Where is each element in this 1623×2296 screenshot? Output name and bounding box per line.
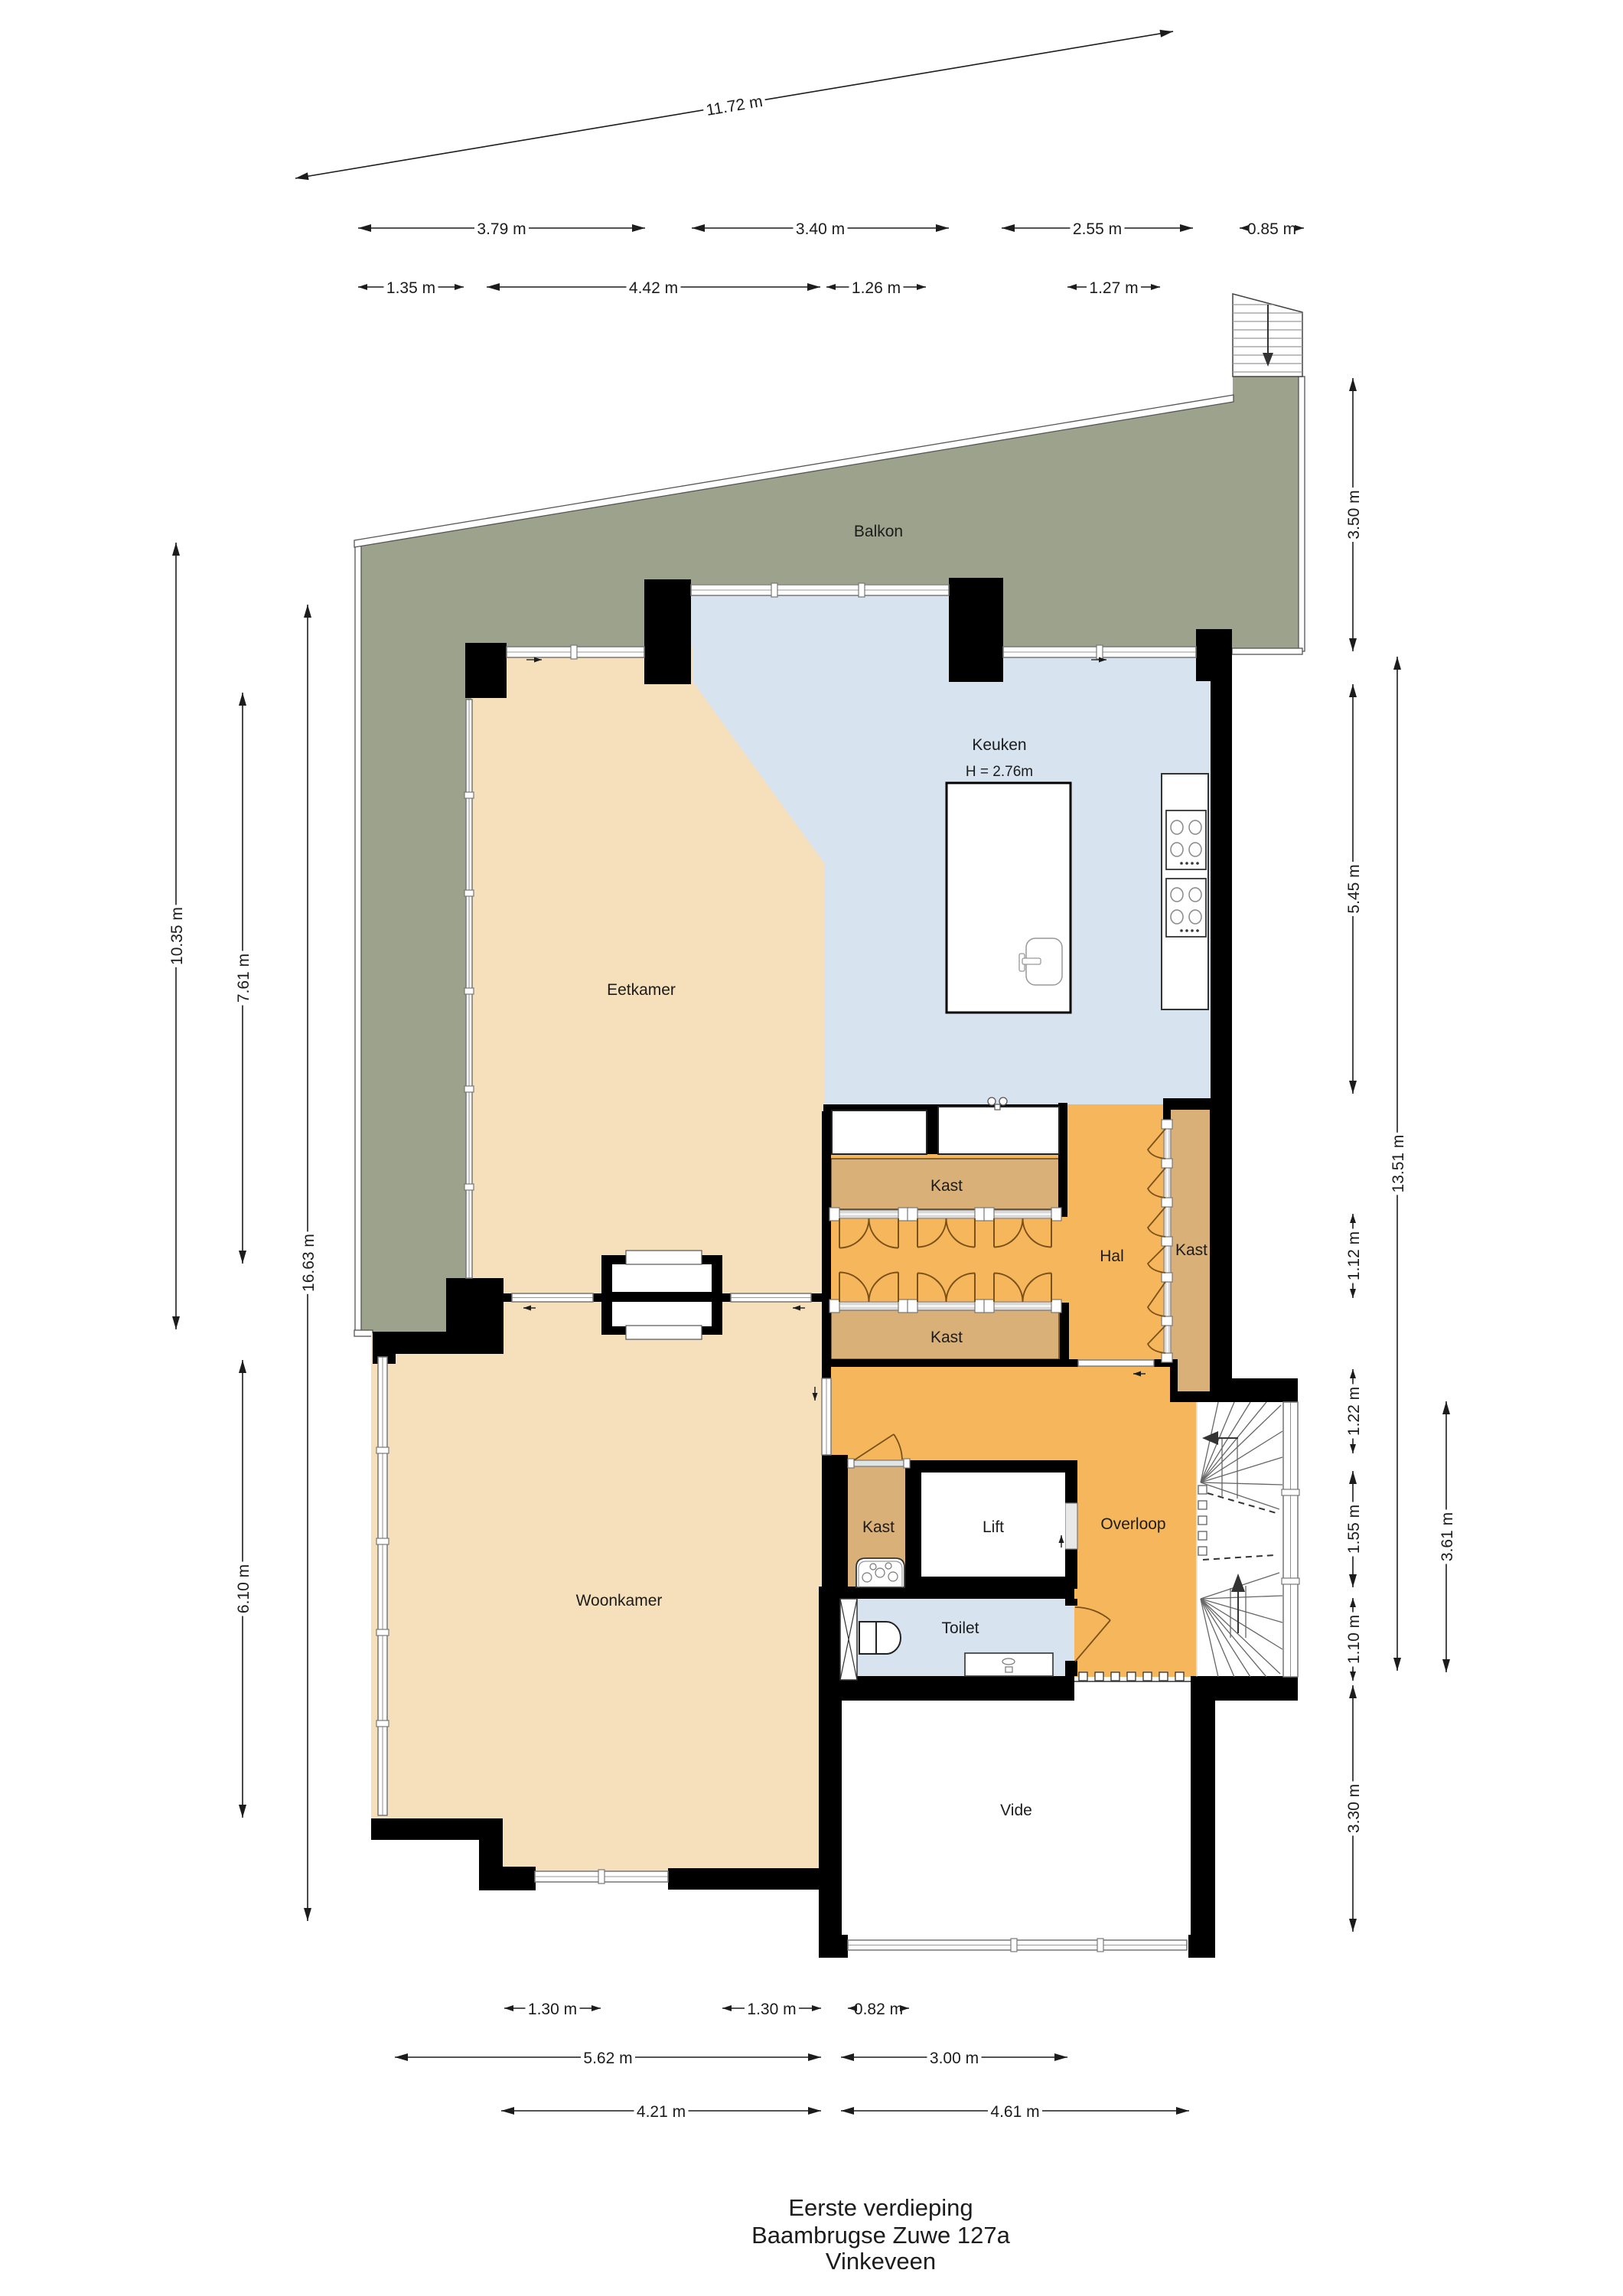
svg-text:Keuken: Keuken: [972, 736, 1026, 754]
svg-text:6.10 m: 6.10 m: [235, 1564, 253, 1613]
svg-text:Kast: Kast: [930, 1177, 963, 1195]
svg-text:Kast: Kast: [930, 1329, 963, 1346]
svg-text:1.30 m: 1.30 m: [528, 2001, 577, 2018]
svg-text:3.50 m: 3.50 m: [1345, 490, 1363, 539]
svg-text:10.35 m: 10.35 m: [168, 907, 186, 965]
svg-text:7.61 m: 7.61 m: [235, 954, 253, 1003]
svg-text:1.35 m: 1.35 m: [386, 279, 435, 297]
svg-text:Kast: Kast: [862, 1518, 895, 1536]
svg-text:1.30 m: 1.30 m: [747, 2001, 796, 2018]
svg-text:3.79 m: 3.79 m: [477, 220, 526, 238]
svg-text:1.22 m: 1.22 m: [1345, 1387, 1363, 1436]
svg-text:1.27 m: 1.27 m: [1089, 279, 1138, 297]
svg-text:Woonkamer: Woonkamer: [576, 1592, 663, 1609]
svg-text:3.00 m: 3.00 m: [930, 2050, 979, 2067]
svg-text:1.26 m: 1.26 m: [852, 279, 901, 297]
svg-text:5.62 m: 5.62 m: [583, 2050, 632, 2067]
svg-text:Lift: Lift: [983, 1518, 1004, 1536]
svg-text:Vide: Vide: [1000, 1802, 1032, 1819]
svg-text:Eetkamer: Eetkamer: [607, 981, 676, 999]
svg-text:Kast: Kast: [1175, 1241, 1207, 1259]
svg-text:0.82 m: 0.82 m: [854, 2001, 903, 2018]
svg-text:16.63 m: 16.63 m: [300, 1234, 318, 1292]
svg-text:4.42 m: 4.42 m: [629, 279, 678, 297]
svg-text:13.51 m: 13.51 m: [1390, 1135, 1407, 1193]
svg-text:5.45 m: 5.45 m: [1345, 864, 1363, 913]
svg-text:Vinkeveen: Vinkeveen: [826, 2248, 936, 2275]
svg-text:Overloop: Overloop: [1100, 1515, 1165, 1533]
svg-text:0.85 m: 0.85 m: [1247, 220, 1296, 238]
svg-text:H = 2.76m: H = 2.76m: [966, 764, 1033, 780]
svg-text:3.40 m: 3.40 m: [796, 220, 845, 238]
svg-text:Eerste verdieping: Eerste verdieping: [788, 2194, 973, 2221]
svg-text:3.61 m: 3.61 m: [1439, 1512, 1456, 1561]
svg-text:Balkon: Balkon: [854, 523, 903, 540]
svg-text:3.30 m: 3.30 m: [1345, 1784, 1363, 1833]
svg-text:2.55 m: 2.55 m: [1073, 220, 1122, 238]
svg-text:4.21 m: 4.21 m: [637, 2103, 686, 2121]
svg-text:4.61 m: 4.61 m: [990, 2103, 1039, 2121]
svg-text:Toilet: Toilet: [941, 1619, 979, 1637]
svg-text:1.55 m: 1.55 m: [1345, 1505, 1363, 1554]
svg-text:1.10 m: 1.10 m: [1345, 1615, 1363, 1664]
svg-text:1.12 m: 1.12 m: [1345, 1231, 1363, 1280]
svg-text:Baambrugse Zuwe 127a: Baambrugse Zuwe 127a: [751, 2222, 1011, 2249]
svg-text:Hal: Hal: [1100, 1247, 1124, 1265]
